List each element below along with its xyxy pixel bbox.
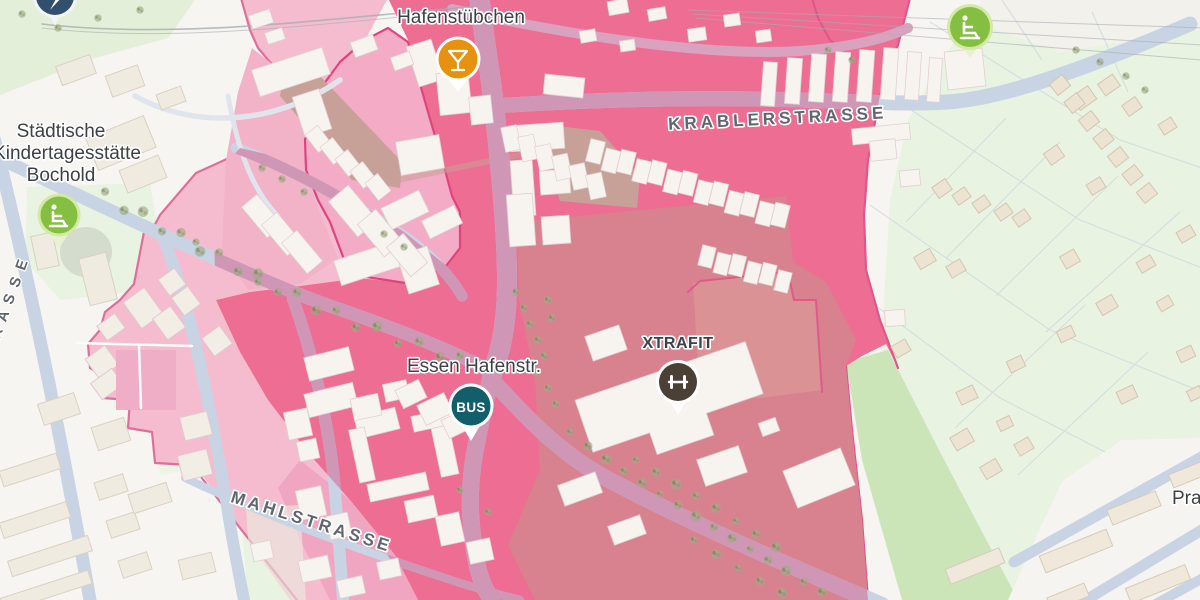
svg-text:Bochold: Bochold [27, 165, 96, 186]
svg-text:BUS: BUS [456, 400, 485, 415]
svg-text:Städtische: Städtische [17, 121, 106, 142]
svg-text:Hafenstübchen: Hafenstübchen [397, 7, 525, 28]
svg-text:Pratt: Pratt [1172, 488, 1200, 509]
svg-text:XTRAFIT: XTRAFIT [642, 335, 713, 352]
svg-text:Kindertagesstätte: Kindertagesstätte [0, 143, 141, 164]
svg-text:Essen Hafenstr.: Essen Hafenstr. [407, 356, 541, 377]
